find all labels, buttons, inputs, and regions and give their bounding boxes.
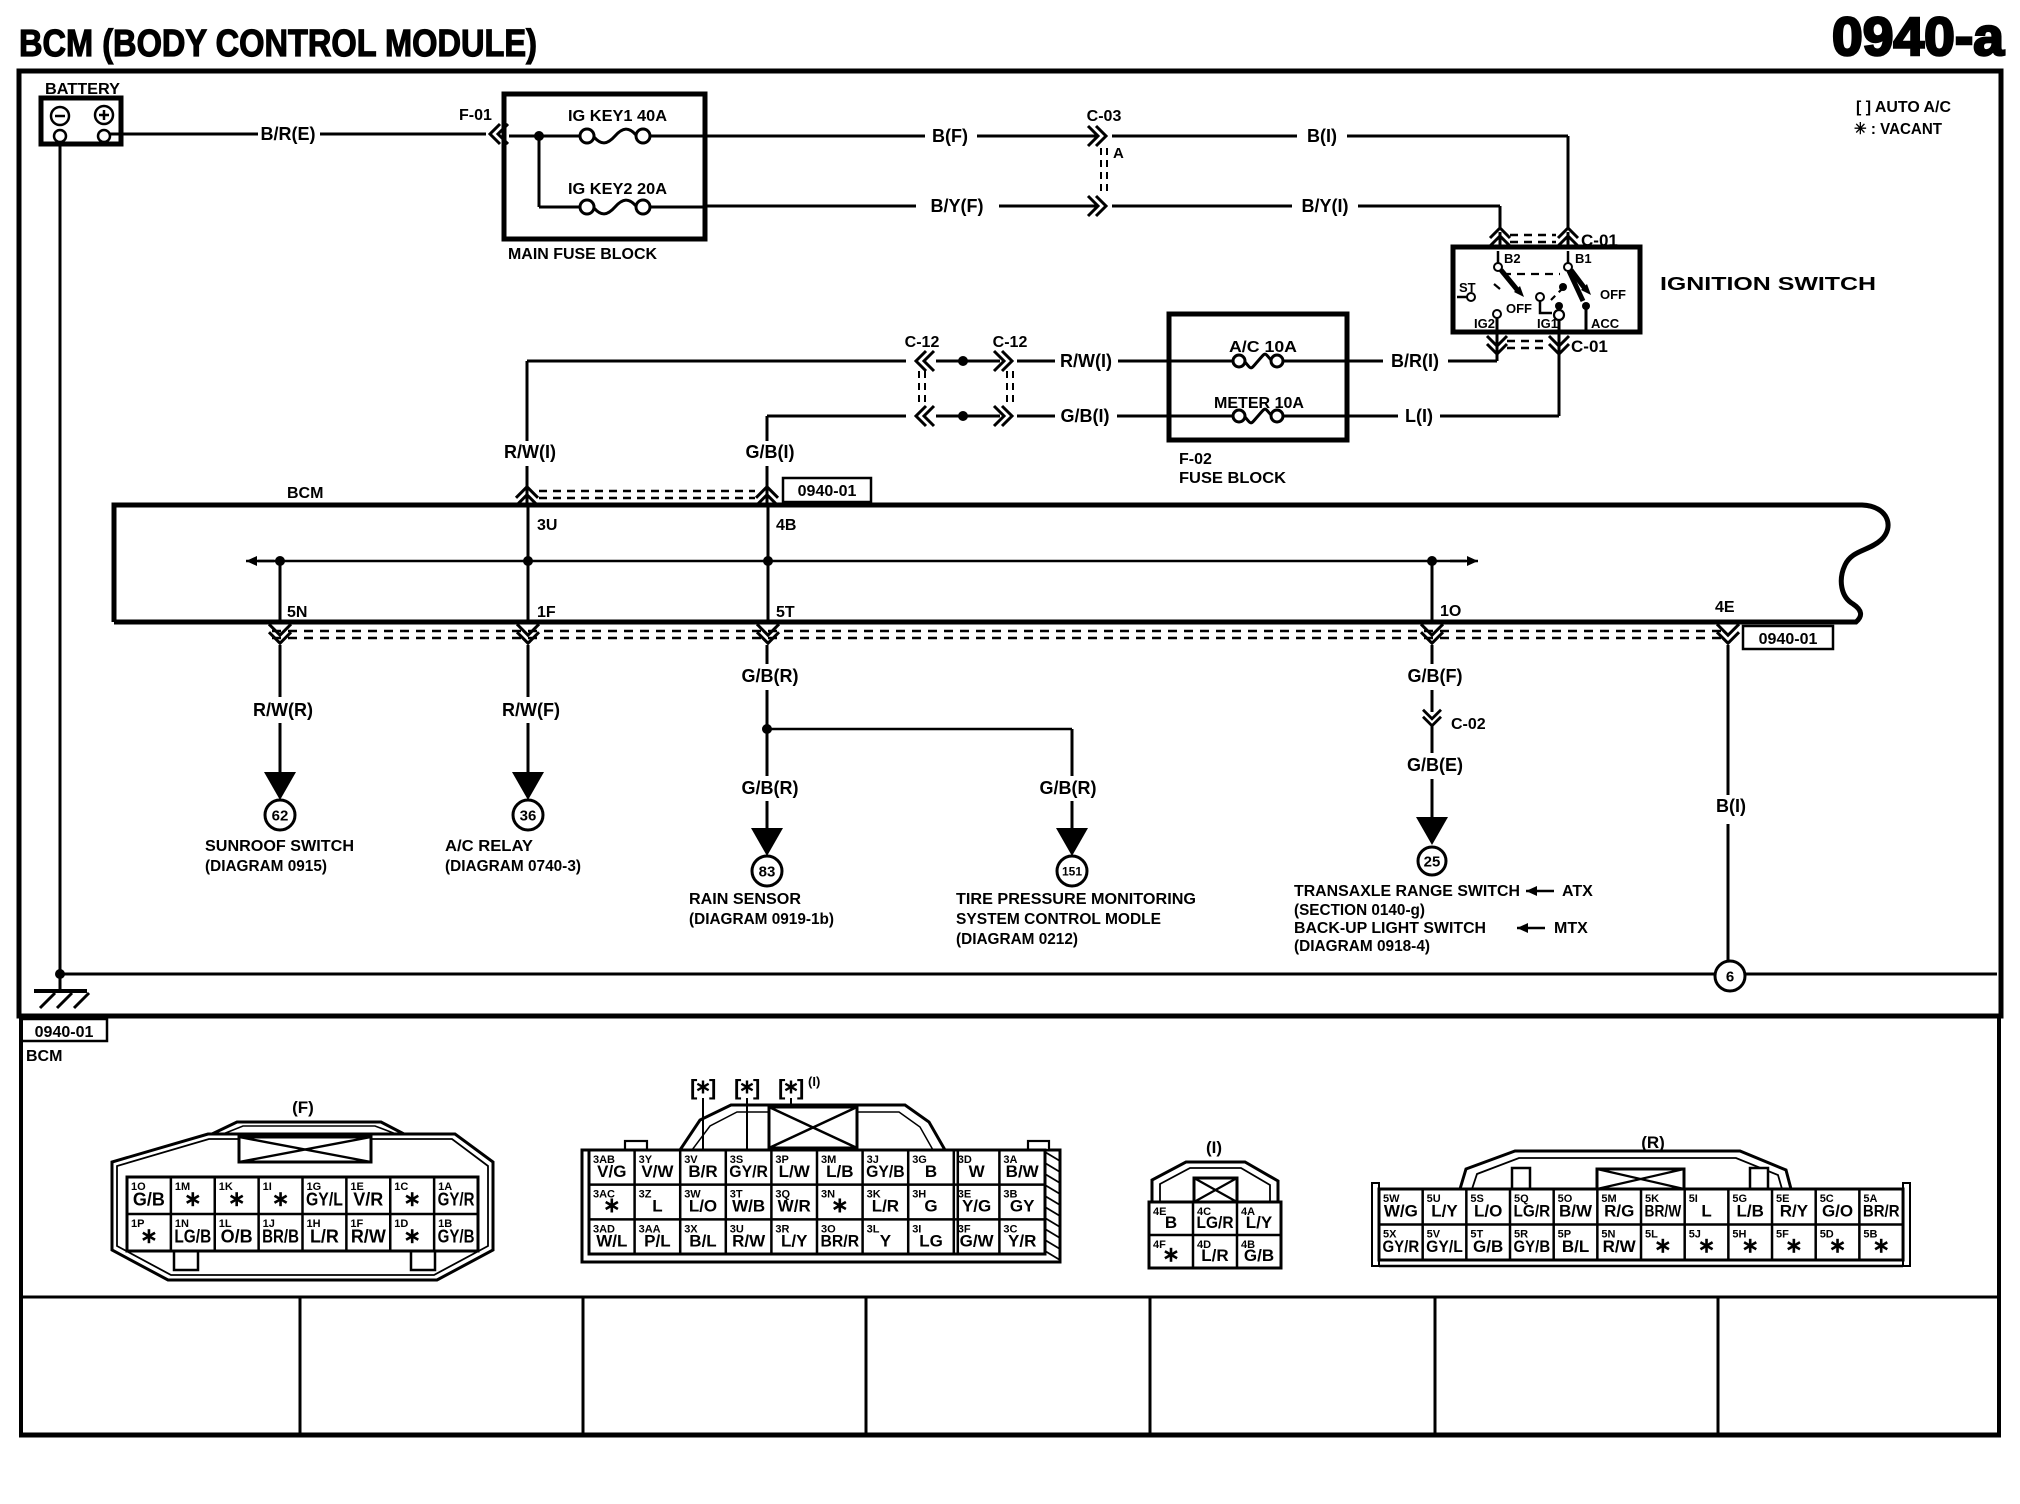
svg-text:BCM: BCM <box>287 485 323 502</box>
svg-text:L/R: L/R <box>1201 1246 1228 1265</box>
svg-text:L: L <box>652 1197 662 1216</box>
svg-text:6: 6 <box>1726 968 1734 985</box>
svg-text:[: [ <box>734 1075 742 1100</box>
svg-text:B/R: B/R <box>688 1162 717 1181</box>
svg-text:4B: 4B <box>776 517 796 534</box>
svg-text:36: 36 <box>520 807 537 824</box>
svg-text:C-12: C-12 <box>905 334 940 351</box>
svg-text:V/G: V/G <box>597 1162 626 1181</box>
svg-text:[: [ <box>778 1075 786 1100</box>
svg-text:IG KEY1 40A: IG KEY1 40A <box>568 108 667 125</box>
svg-text:(DIAGRAM 0918-4): (DIAGRAM 0918-4) <box>1294 938 1430 955</box>
svg-text:(F): (F) <box>292 1098 314 1117</box>
svg-text:3Z: 3Z <box>639 1189 652 1201</box>
svg-text:OFF: OFF <box>1506 301 1532 316</box>
svg-text:SUNROOF SWITCH: SUNROOF SWITCH <box>205 838 354 855</box>
svg-text:R/W: R/W <box>1603 1237 1637 1256</box>
svg-text:G/B(F): G/B(F) <box>1408 666 1463 686</box>
svg-text:4E: 4E <box>1715 599 1735 616</box>
svg-text:0940-01: 0940-01 <box>798 483 857 500</box>
svg-text:O/B: O/B <box>221 1227 253 1247</box>
svg-text:L/R: L/R <box>872 1197 899 1216</box>
svg-text:A: A <box>1113 145 1124 162</box>
svg-text:TIRE PRESSURE MONITORING: TIRE PRESSURE MONITORING <box>956 891 1196 908</box>
svg-text:1O: 1O <box>1440 603 1461 620</box>
svg-text:GY: GY <box>1010 1197 1035 1216</box>
svg-text:F-01: F-01 <box>459 107 492 124</box>
svg-text:R/Y: R/Y <box>1780 1201 1809 1220</box>
svg-text:]: ] <box>797 1075 804 1100</box>
svg-text:✳ : VACANT: ✳ : VACANT <box>1854 121 1942 138</box>
svg-text:B/R(I): B/R(I) <box>1391 351 1439 371</box>
svg-text:Y/R: Y/R <box>1008 1231 1036 1250</box>
svg-text:B/W: B/W <box>1006 1162 1040 1181</box>
svg-text:1P: 1P <box>131 1218 144 1230</box>
svg-text:151: 151 <box>1062 864 1082 878</box>
svg-text:3L: 3L <box>867 1223 880 1235</box>
svg-text:1D: 1D <box>394 1218 408 1230</box>
svg-text:GY/R: GY/R <box>438 1190 475 1210</box>
svg-text:BR/W: BR/W <box>1645 1201 1682 1220</box>
svg-text:B(F): B(F) <box>932 126 968 146</box>
svg-text:L/B: L/B <box>1736 1201 1763 1220</box>
svg-text:]: ] <box>709 1075 716 1100</box>
svg-text:L: L <box>1701 1201 1711 1220</box>
svg-text:R/W(I): R/W(I) <box>504 442 556 462</box>
svg-text:1I: 1I <box>263 1181 272 1193</box>
svg-text:83: 83 <box>759 863 776 880</box>
svg-text:BR/R: BR/R <box>821 1231 860 1250</box>
svg-text:GY/B: GY/B <box>438 1227 475 1247</box>
svg-text:LG/R: LG/R <box>1197 1213 1234 1232</box>
svg-text:B/L: B/L <box>689 1231 716 1250</box>
svg-text:W/B: W/B <box>732 1197 765 1216</box>
svg-text:C-02: C-02 <box>1451 716 1486 733</box>
svg-text:G/B(E): G/B(E) <box>1407 755 1463 775</box>
svg-text:G/B(I): G/B(I) <box>1061 406 1110 426</box>
svg-text:5F: 5F <box>1776 1229 1789 1241</box>
svg-text:L/B: L/B <box>826 1162 853 1181</box>
svg-text:BCM: BCM <box>26 1048 62 1065</box>
svg-text:Y: Y <box>880 1231 892 1250</box>
svg-text:MTX: MTX <box>1554 920 1588 937</box>
svg-text:B(I): B(I) <box>1716 796 1746 816</box>
svg-text:(DIAGRAM 0915): (DIAGRAM 0915) <box>205 858 327 875</box>
svg-text:ATX: ATX <box>1562 883 1593 900</box>
svg-text:SYSTEM CONTROL MODLE: SYSTEM CONTROL MODLE <box>956 911 1161 928</box>
svg-text:LG/R: LG/R <box>1514 1201 1551 1220</box>
svg-text:B/W: B/W <box>1559 1201 1593 1220</box>
svg-text:IGNITION SWITCH: IGNITION SWITCH <box>1660 274 1876 294</box>
svg-text:R/W: R/W <box>732 1231 766 1250</box>
svg-text:GY/L: GY/L <box>1426 1237 1463 1256</box>
svg-text:R/W: R/W <box>351 1227 386 1247</box>
svg-text:R/W(I): R/W(I) <box>1060 351 1112 371</box>
svg-text:G/O: G/O <box>1822 1201 1853 1220</box>
svg-text:(DIAGRAM 0212): (DIAGRAM 0212) <box>956 931 1078 948</box>
svg-text:W/L: W/L <box>596 1231 627 1250</box>
svg-text:1K: 1K <box>219 1181 233 1193</box>
svg-text:MAIN FUSE BLOCK: MAIN FUSE BLOCK <box>508 246 657 263</box>
svg-text:5D: 5D <box>1820 1229 1834 1241</box>
svg-text:A/C RELAY: A/C RELAY <box>445 838 533 855</box>
svg-text:5H: 5H <box>1732 1229 1746 1241</box>
svg-text:]: ] <box>753 1075 760 1100</box>
svg-text:25: 25 <box>1424 853 1441 870</box>
svg-text:5J: 5J <box>1689 1229 1701 1241</box>
svg-text:C-03: C-03 <box>1087 108 1122 125</box>
svg-text:G/B(I): G/B(I) <box>746 442 795 462</box>
svg-text:L/Y: L/Y <box>1246 1213 1273 1232</box>
svg-text:V/W: V/W <box>641 1162 674 1181</box>
svg-text:G/B: G/B <box>1473 1237 1503 1256</box>
svg-text:B(I): B(I) <box>1307 126 1337 146</box>
svg-text:GY/L: GY/L <box>306 1190 343 1210</box>
svg-text:B1: B1 <box>1575 251 1592 266</box>
svg-text:(R): (R) <box>1641 1133 1665 1152</box>
svg-text:L/Y: L/Y <box>781 1231 808 1250</box>
svg-text:0940-a: 0940-a <box>1832 7 2005 67</box>
svg-text:BCM (BODY CONTROL MODULE): BCM (BODY CONTROL MODULE) <box>19 23 537 65</box>
svg-text:BR/B: BR/B <box>262 1227 299 1247</box>
svg-text:[: [ <box>690 1075 698 1100</box>
svg-text:5B: 5B <box>1863 1229 1877 1241</box>
svg-text:B/Y(F): B/Y(F) <box>931 196 984 216</box>
svg-text:R/G: R/G <box>1604 1201 1634 1220</box>
svg-text:OFF: OFF <box>1600 287 1626 302</box>
svg-text:G: G <box>924 1197 937 1216</box>
svg-text:1F: 1F <box>537 604 556 621</box>
svg-text:4F: 4F <box>1153 1239 1166 1251</box>
svg-text:B: B <box>925 1162 937 1181</box>
svg-text:BATTERY: BATTERY <box>45 81 120 98</box>
svg-text:G/B(R): G/B(R) <box>742 666 799 686</box>
svg-text:METER 10A: METER 10A <box>1214 395 1304 412</box>
svg-text:3N: 3N <box>821 1189 835 1201</box>
svg-text:BACK-UP LIGHT SWITCH: BACK-UP LIGHT SWITCH <box>1294 920 1486 937</box>
svg-text:RAIN SENSOR: RAIN SENSOR <box>689 891 801 908</box>
svg-text:W/G: W/G <box>1384 1201 1418 1220</box>
svg-text:3U: 3U <box>537 517 557 534</box>
svg-text:5T: 5T <box>776 604 795 621</box>
svg-text:LG: LG <box>919 1231 943 1250</box>
svg-text:G/B: G/B <box>133 1190 165 1210</box>
svg-text:F-02: F-02 <box>1179 451 1212 468</box>
svg-text:L(I): L(I) <box>1405 406 1433 426</box>
svg-text:GY/B: GY/B <box>1514 1237 1551 1256</box>
svg-text:R/W(F): R/W(F) <box>502 700 560 720</box>
svg-text:G/B(R): G/B(R) <box>742 778 799 798</box>
svg-text:P/L: P/L <box>644 1231 670 1250</box>
svg-text:L/O: L/O <box>1474 1201 1502 1220</box>
svg-text:BR/R: BR/R <box>1863 1201 1900 1220</box>
svg-text:L/R: L/R <box>310 1227 339 1247</box>
svg-text:1M: 1M <box>175 1181 190 1193</box>
svg-text:(SECTION 0140-g): (SECTION 0140-g) <box>1294 902 1425 919</box>
svg-text:62: 62 <box>272 807 289 824</box>
svg-text:G/W: G/W <box>960 1231 995 1250</box>
svg-text:W: W <box>969 1162 986 1181</box>
svg-text:G/B: G/B <box>1244 1246 1274 1265</box>
svg-text:GY/B: GY/B <box>866 1162 905 1181</box>
svg-text:C-01: C-01 <box>1571 337 1608 356</box>
svg-text:ACC: ACC <box>1591 316 1620 331</box>
svg-text:0940-01: 0940-01 <box>35 1024 94 1041</box>
svg-text:TRANSAXLE RANGE SWITCH: TRANSAXLE RANGE SWITCH <box>1294 883 1520 900</box>
svg-text:[ ] AUTO A/C: [ ] AUTO A/C <box>1856 99 1951 116</box>
svg-text:B/L: B/L <box>1562 1237 1589 1256</box>
svg-text:(DIAGRAM 0740-3): (DIAGRAM 0740-3) <box>445 858 581 875</box>
svg-text:5I: 5I <box>1689 1193 1698 1205</box>
svg-text:(I): (I) <box>808 1074 820 1089</box>
svg-text:B: B <box>1165 1213 1177 1232</box>
svg-text:L/W: L/W <box>779 1162 811 1181</box>
svg-text:LG/B: LG/B <box>174 1227 211 1247</box>
svg-text:W/R: W/R <box>778 1197 811 1216</box>
svg-text:V/R: V/R <box>353 1190 383 1210</box>
svg-text:B/Y(I): B/Y(I) <box>1302 196 1349 216</box>
svg-text:GY/R: GY/R <box>1383 1237 1420 1256</box>
svg-text:0940-01: 0940-01 <box>1759 631 1818 648</box>
svg-text:L/Y: L/Y <box>1431 1201 1458 1220</box>
svg-text:B2: B2 <box>1504 251 1521 266</box>
svg-text:FUSE BLOCK: FUSE BLOCK <box>1179 470 1286 487</box>
svg-text:R/W(R): R/W(R) <box>253 700 313 720</box>
svg-text:B/R(E): B/R(E) <box>261 124 316 144</box>
svg-text:GY/R: GY/R <box>729 1162 768 1181</box>
svg-text:5L: 5L <box>1645 1229 1658 1241</box>
svg-text:5N: 5N <box>287 604 307 621</box>
svg-text:C-12: C-12 <box>993 334 1028 351</box>
svg-text:L/O: L/O <box>689 1197 717 1216</box>
svg-text:IG KEY2 20A: IG KEY2 20A <box>568 181 667 198</box>
svg-text:G/B(R): G/B(R) <box>1040 778 1097 798</box>
svg-text:Y/G: Y/G <box>962 1197 991 1216</box>
svg-text:IG2: IG2 <box>1474 316 1495 331</box>
svg-text:(I): (I) <box>1206 1138 1222 1157</box>
svg-text:1C: 1C <box>394 1181 408 1193</box>
svg-text:(DIAGRAM 0919-1b): (DIAGRAM 0919-1b) <box>689 911 834 928</box>
